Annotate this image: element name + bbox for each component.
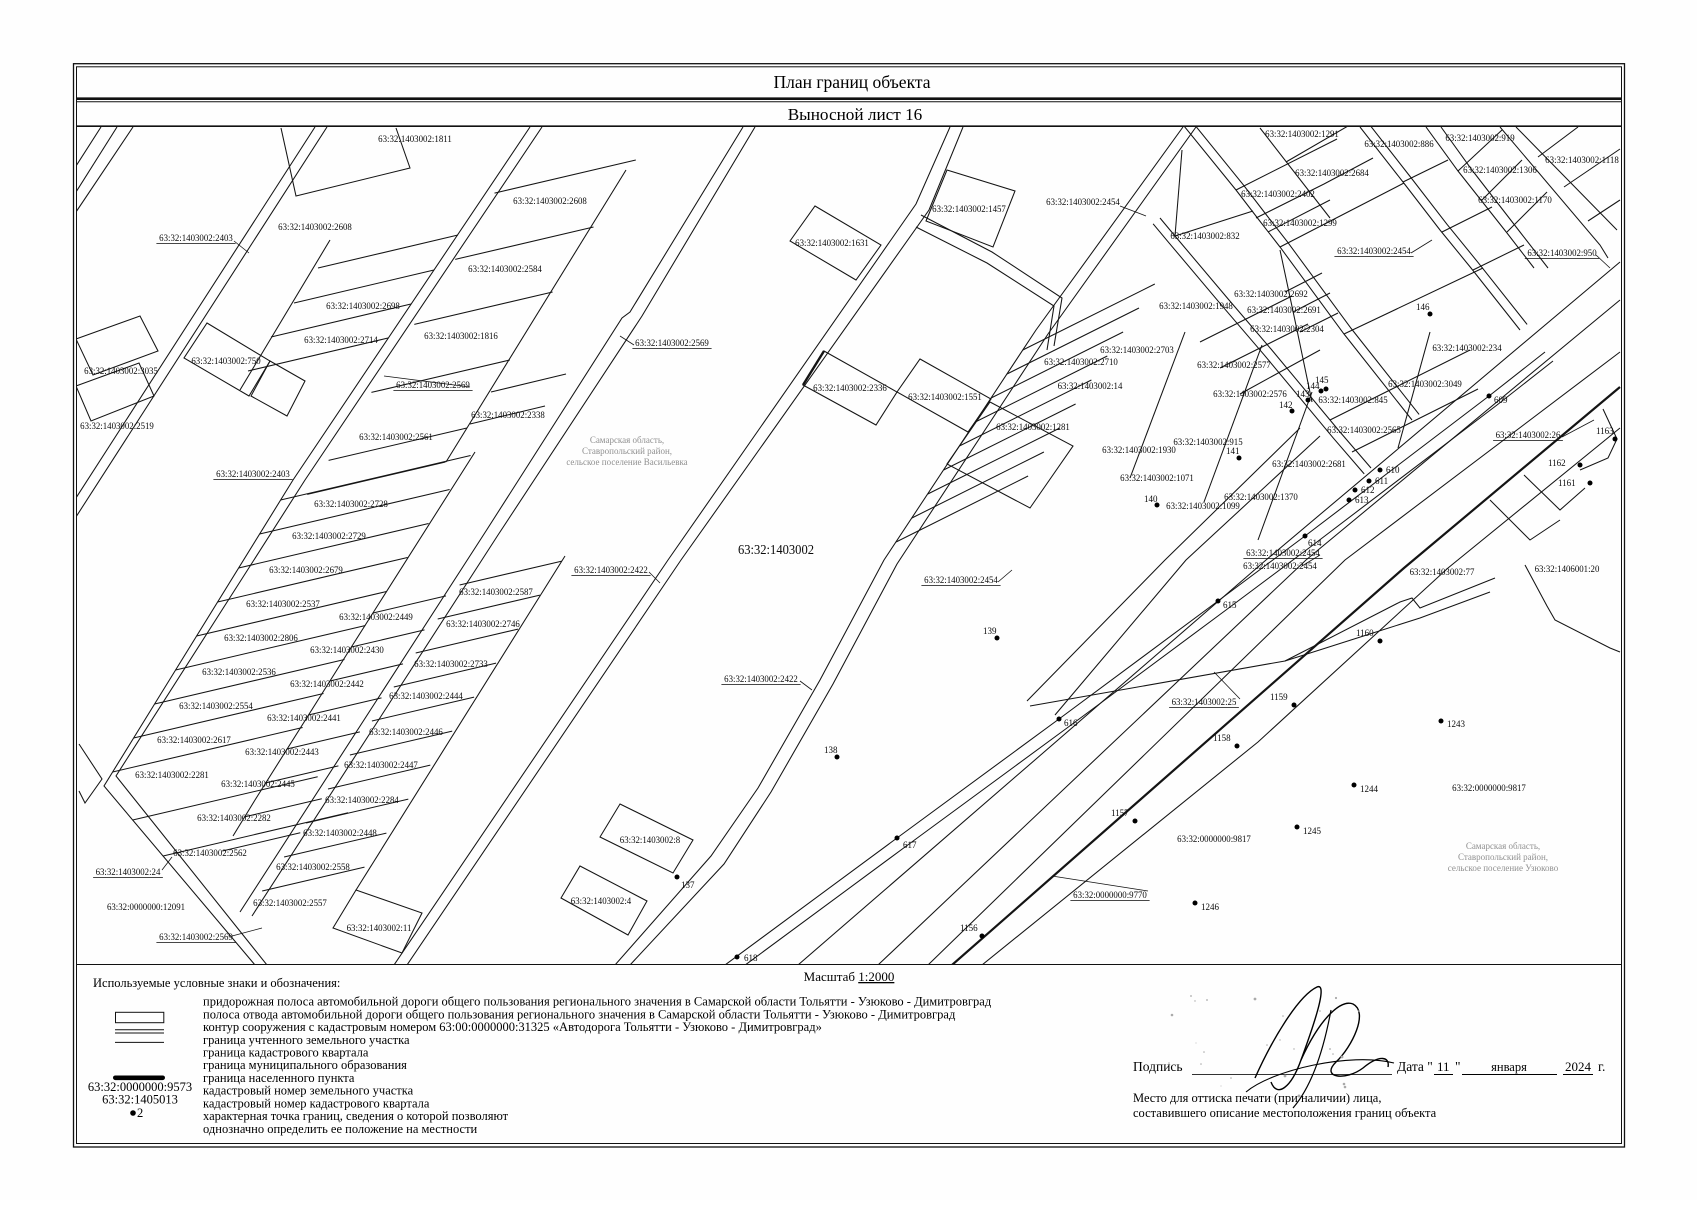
svg-text:63:32:1403002:2441: 63:32:1403002:2441 [267,714,341,724]
svg-text:63:32:1403002:2692: 63:32:1403002:2692 [1234,290,1308,300]
svg-text:63:32:1403002:832: 63:32:1403002:832 [1170,232,1240,242]
svg-text:63:32:1403002:1457: 63:32:1403002:1457 [932,205,1006,215]
svg-text:63:32:1403002:2536: 63:32:1403002:2536 [202,668,276,678]
svg-text:615: 615 [1223,600,1237,610]
svg-text:63:32:1403002:2569: 63:32:1403002:2569 [396,381,470,391]
svg-text:63:32:1403002:2444: 63:32:1403002:2444 [389,692,463,702]
svg-text:2024: 2024 [1565,1059,1592,1074]
svg-text:611: 611 [1375,476,1388,486]
svg-text:января: января [1491,1060,1527,1074]
svg-text:63:32:1403002:2403: 63:32:1403002:2403 [159,234,233,244]
svg-text:63:32:1403002:1948: 63:32:1403002:1948 [1159,302,1233,312]
svg-text:142: 142 [1279,400,1293,410]
svg-text:63:32:1403002:8: 63:32:1403002:8 [620,836,681,846]
svg-text:63:32:1403002:2746: 63:32:1403002:2746 [446,620,520,630]
svg-text:63:32:1403002:2447: 63:32:1403002:2447 [344,761,418,771]
svg-text:63:32:1403002:2703: 63:32:1403002:2703 [1100,346,1174,356]
svg-text:63:32:1403002:2681: 63:32:1403002:2681 [1272,460,1346,470]
svg-text:63:32:1403002:2454: 63:32:1403002:2454 [1337,247,1411,257]
svg-text:63:32:1403002:2422: 63:32:1403002:2422 [724,675,798,685]
svg-text:63:32:1403002:3035: 63:32:1403002:3035 [84,367,158,377]
svg-text:63:32:1403002:2284: 63:32:1403002:2284 [325,796,399,806]
svg-text:63:32:1403002:2557: 63:32:1403002:2557 [253,899,327,909]
svg-text:63:32:1403002:1281: 63:32:1403002:1281 [996,423,1070,433]
svg-text:Самарская область,: Самарская область, [590,435,664,445]
svg-text:139: 139 [983,626,997,636]
svg-text:63:32:1403002:1291: 63:32:1403002:1291 [1265,130,1339,140]
svg-text:Ставропольский район,: Ставропольский район, [582,446,672,456]
svg-text:63:32:1403002:14: 63:32:1403002:14 [1058,382,1123,392]
svg-text:63:32:1403002:2454: 63:32:1403002:2454 [924,576,998,586]
svg-text:63:32:1403002:2281: 63:32:1403002:2281 [135,771,209,781]
svg-text:сельское поселение Узюково: сельское поселение Узюково [1448,863,1559,873]
svg-text:63:32:1403002:2617: 63:32:1403002:2617 [157,736,231,746]
svg-text:63:32:1403002:2565: 63:32:1403002:2565 [1327,426,1401,436]
svg-text:614: 614 [1308,538,1322,548]
svg-text:63:32:1403002:234: 63:32:1403002:234 [1432,344,1502,354]
svg-text:63:32:1403002:2519: 63:32:1403002:2519 [80,422,154,432]
svg-text:63:32:1403002:2554: 63:32:1403002:2554 [179,702,253,712]
svg-text:138: 138 [824,745,838,755]
svg-text:г.: г. [1598,1059,1605,1074]
svg-text:63:32:1405013: 63:32:1405013 [102,1093,178,1107]
svg-text:63:32:1403002:1099: 63:32:1403002:1099 [1166,502,1240,512]
svg-text:63:32:1403002:2449: 63:32:1403002:2449 [339,613,413,623]
svg-text:Ставропольский район,: Ставропольский район, [1458,852,1548,862]
svg-text:612: 612 [1361,485,1375,495]
svg-text:63:32:0000000:9817: 63:32:0000000:9817 [1177,835,1251,845]
svg-text:63:32:0000000:9770: 63:32:0000000:9770 [1073,891,1147,901]
svg-text:63:32:1403002:2729: 63:32:1403002:2729 [292,532,366,542]
svg-text:63:32:1403002:2577: 63:32:1403002:2577 [1197,361,1271,371]
svg-text:63:32:1403002:950: 63:32:1403002:950 [1527,249,1597,259]
svg-text:2: 2 [137,1106,143,1120]
svg-text:63:32:1406001:20: 63:32:1406001:20 [1535,565,1600,575]
svg-text:63:32:1403002:2710: 63:32:1403002:2710 [1044,358,1118,368]
svg-text:613: 613 [1355,495,1369,505]
svg-text:1246: 1246 [1201,902,1220,912]
svg-text:63:32:1403002:2733: 63:32:1403002:2733 [414,660,488,670]
svg-text:63:32:1403002:2698: 63:32:1403002:2698 [326,302,400,312]
svg-text:63:32:1403002:2537: 63:32:1403002:2537 [246,600,320,610]
svg-text:63:32:1403002:2338: 63:32:1403002:2338 [471,411,545,421]
svg-text:63:32:1403002:2562: 63:32:1403002:2562 [173,849,247,859]
svg-text:1156: 1156 [960,923,978,933]
svg-text:63:32:1403002:2561: 63:32:1403002:2561 [359,433,433,443]
svg-text:137: 137 [681,880,695,890]
svg-text:1244: 1244 [1360,784,1379,794]
svg-text:63:32:1403002:3049: 63:32:1403002:3049 [1388,380,1462,390]
svg-text:Масштаб 1:2000: Масштаб 1:2000 [804,969,895,984]
svg-text:1158: 1158 [1213,733,1231,743]
svg-text:63:32:1403002:919: 63:32:1403002:919 [1445,134,1515,144]
svg-text:617: 617 [903,840,917,850]
svg-text:63:32:1403002:2336: 63:32:1403002:2336 [813,384,887,394]
svg-text:1161: 1161 [1558,478,1576,488]
svg-text:63:32:1403002:2587: 63:32:1403002:2587 [459,588,533,598]
svg-text:63:32:1403002:1306: 63:32:1403002:1306 [1463,166,1537,176]
svg-text:63:32:1403002:2806: 63:32:1403002:2806 [224,634,298,644]
svg-text:63:32:1403002:2679: 63:32:1403002:2679 [269,566,343,576]
svg-text:Используемые условные знаки и: Используемые условные знаки и обозначени… [93,976,340,990]
svg-text:146: 146 [1416,302,1430,312]
svg-text:составившего описание местопол: составившего описание местоположения гра… [1133,1106,1437,1120]
svg-text:63:32:1403002:2454: 63:32:1403002:2454 [1246,549,1320,559]
svg-text:1159: 1159 [1270,692,1288,702]
svg-text:609: 609 [1494,395,1508,405]
svg-text:63:32:1403002:2576: 63:32:1403002:2576 [1213,390,1287,400]
svg-text:Подпись: Подпись [1133,1059,1183,1074]
svg-text:63:32:1403002:1930: 63:32:1403002:1930 [1102,446,1176,456]
svg-text:1163: 1163 [1596,426,1614,436]
svg-text:63:32:0000000:9817: 63:32:0000000:9817 [1452,784,1526,794]
svg-text:63:32:0000000:12091: 63:32:0000000:12091 [107,903,185,913]
svg-text:63:32:1403002:2608: 63:32:1403002:2608 [278,223,352,233]
svg-text:63:32:1403002:750: 63:32:1403002:750 [191,357,261,367]
svg-text:63:32:1403002:1811: 63:32:1403002:1811 [378,135,452,145]
svg-text:1160: 1160 [1356,628,1374,638]
svg-text:Выносной лист 16: Выносной лист 16 [788,105,923,124]
svg-text:141: 141 [1226,446,1240,456]
svg-text:63:32:1403002:4: 63:32:1403002:4 [571,897,632,907]
svg-text:145: 145 [1315,375,1329,385]
svg-text:63:32:1403002:2403: 63:32:1403002:2403 [216,470,290,480]
svg-text:63:32:1403002:1551: 63:32:1403002:1551 [908,393,982,403]
svg-text:63:32:1403002:2714: 63:32:1403002:2714 [304,336,378,346]
svg-text:Самарская область,: Самарская область, [1466,841,1540,851]
svg-text:63:32:1403002:2728: 63:32:1403002:2728 [314,500,388,510]
svg-text:63:32:1403002:2402: 63:32:1403002:2402 [1241,190,1315,200]
svg-text:63:32:1403002:1631: 63:32:1403002:1631 [795,239,869,249]
svg-text:618: 618 [744,953,758,963]
svg-text:63:32:1403002:2443: 63:32:1403002:2443 [245,748,319,758]
svg-text:63:32:1403002:1071: 63:32:1403002:1071 [1120,474,1194,484]
svg-text:63:32:1403002:2422: 63:32:1403002:2422 [574,566,648,576]
svg-text:1157: 1157 [1111,808,1129,818]
svg-text:63:32:1403002:1170: 63:32:1403002:1170 [1478,196,1552,206]
svg-text:63:32:1403002:2584: 63:32:1403002:2584 [468,265,542,275]
svg-text:63:32:1403002:26: 63:32:1403002:26 [1496,431,1561,441]
svg-text:63:32:1403002:1299: 63:32:1403002:1299 [1263,219,1337,229]
svg-text:63:32:1403002:2569: 63:32:1403002:2569 [159,933,233,943]
svg-text:63:32:1403002:2445: 63:32:1403002:2445 [221,780,295,790]
svg-text:63:32:1403002:886: 63:32:1403002:886 [1364,140,1434,150]
svg-text:63:32:1403002:2454: 63:32:1403002:2454 [1243,562,1317,572]
svg-text:Место для оттиска печати (при: Место для оттиска печати (при наличии) л… [1133,1091,1381,1105]
svg-text:63:32:1403002:2454: 63:32:1403002:2454 [1046,198,1120,208]
svg-text:1245: 1245 [1303,826,1322,836]
svg-text:63:32:1403002:2442: 63:32:1403002:2442 [290,680,364,690]
svg-text:63:32:1403002:11: 63:32:1403002:11 [347,924,412,934]
svg-text:63:32:1403002:845: 63:32:1403002:845 [1318,396,1388,406]
svg-text:63:32:1403002:24: 63:32:1403002:24 [96,868,161,878]
svg-text:610: 610 [1386,465,1400,475]
svg-text:сельское поселение Васильевка: сельское поселение Васильевка [566,457,687,467]
svg-text:Дата ": Дата " [1397,1059,1433,1074]
svg-text:63:32:1403002: 63:32:1403002 [738,542,814,557]
svg-text:63:32:1403002:1370: 63:32:1403002:1370 [1224,493,1298,503]
svg-text:План границ объекта: План границ объекта [774,72,931,92]
svg-text:616: 616 [1064,718,1078,728]
svg-text:11: 11 [1437,1059,1450,1074]
svg-text:140: 140 [1144,494,1158,504]
svg-text:63:32:1403002:1118: 63:32:1403002:1118 [1545,156,1619,166]
svg-text:63:32:1403002:1816: 63:32:1403002:1816 [424,332,498,342]
svg-text:1162: 1162 [1548,458,1566,468]
svg-text:63:32:1403002:2446: 63:32:1403002:2446 [369,728,443,738]
svg-text:63:32:1403002:77: 63:32:1403002:77 [1410,568,1475,578]
svg-text:63:32:1403002:2282: 63:32:1403002:2282 [197,814,271,824]
svg-text:1243: 1243 [1447,719,1466,729]
svg-text:63:32:1403002:2691: 63:32:1403002:2691 [1247,306,1321,316]
svg-text:63:32:1403002:2304: 63:32:1403002:2304 [1250,325,1324,335]
svg-text:63:32:1403002:2569: 63:32:1403002:2569 [635,339,709,349]
svg-text:63:32:1403002:25: 63:32:1403002:25 [1172,698,1237,708]
svg-text:63:32:1403002:2558: 63:32:1403002:2558 [276,863,350,873]
svg-text:": " [1455,1059,1461,1074]
svg-text:63:32:1403002:2430: 63:32:1403002:2430 [310,646,384,656]
svg-text:однозначно определить ее полож: однозначно определить ее положение на ме… [203,1122,478,1136]
svg-text:63:32:1403002:2684: 63:32:1403002:2684 [1295,169,1369,179]
svg-text:63:32:1403002:2448: 63:32:1403002:2448 [303,829,377,839]
svg-text:63:32:1403002:2608: 63:32:1403002:2608 [513,197,587,207]
